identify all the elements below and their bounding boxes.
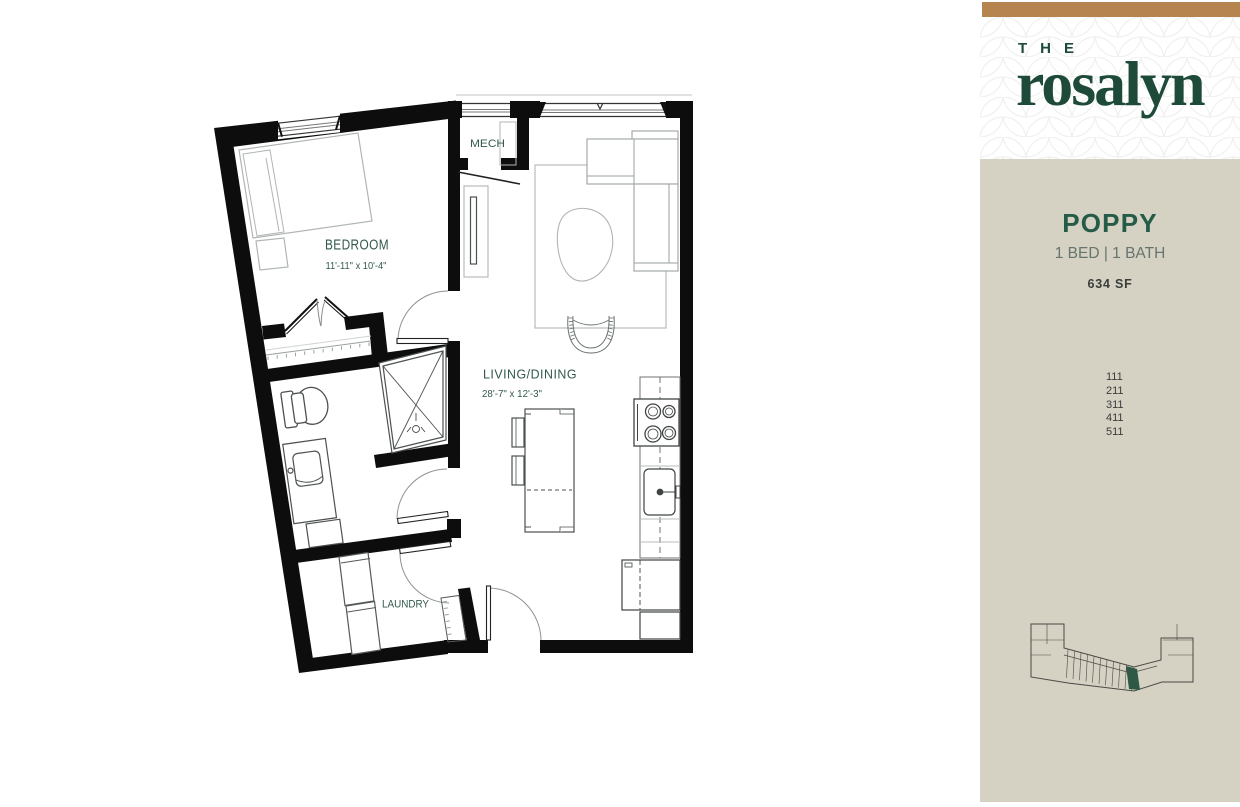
svg-text:11'-11" x 10'-4": 11'-11" x 10'-4" bbox=[326, 260, 387, 272]
svg-text:BEDROOM: BEDROOM bbox=[325, 238, 389, 254]
svg-text:28'-7" x 12'-3": 28'-7" x 12'-3" bbox=[482, 388, 542, 400]
svg-text:LAUNDRY: LAUNDRY bbox=[382, 599, 429, 611]
svg-text:MECH: MECH bbox=[470, 138, 505, 150]
svg-text:LIVING/DINING: LIVING/DINING bbox=[483, 368, 577, 382]
